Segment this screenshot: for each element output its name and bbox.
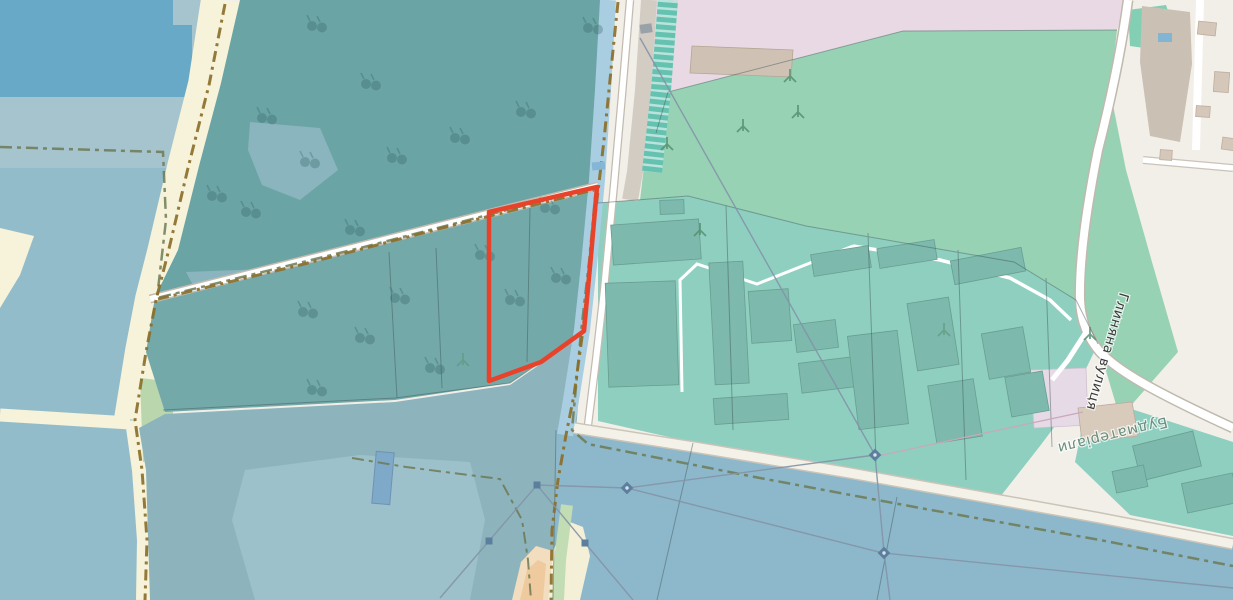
warehouse-building [690,46,793,77]
small-water-tank [592,161,606,170]
barrier-icon [640,23,653,34]
pond [372,451,394,504]
map-viewport[interactable]: Глиняна вулиця Будматеріали [0,0,1233,600]
small-water-tank [1158,33,1172,42]
map-canvas[interactable]: Глиняна вулиця Будматеріали [0,0,1233,600]
